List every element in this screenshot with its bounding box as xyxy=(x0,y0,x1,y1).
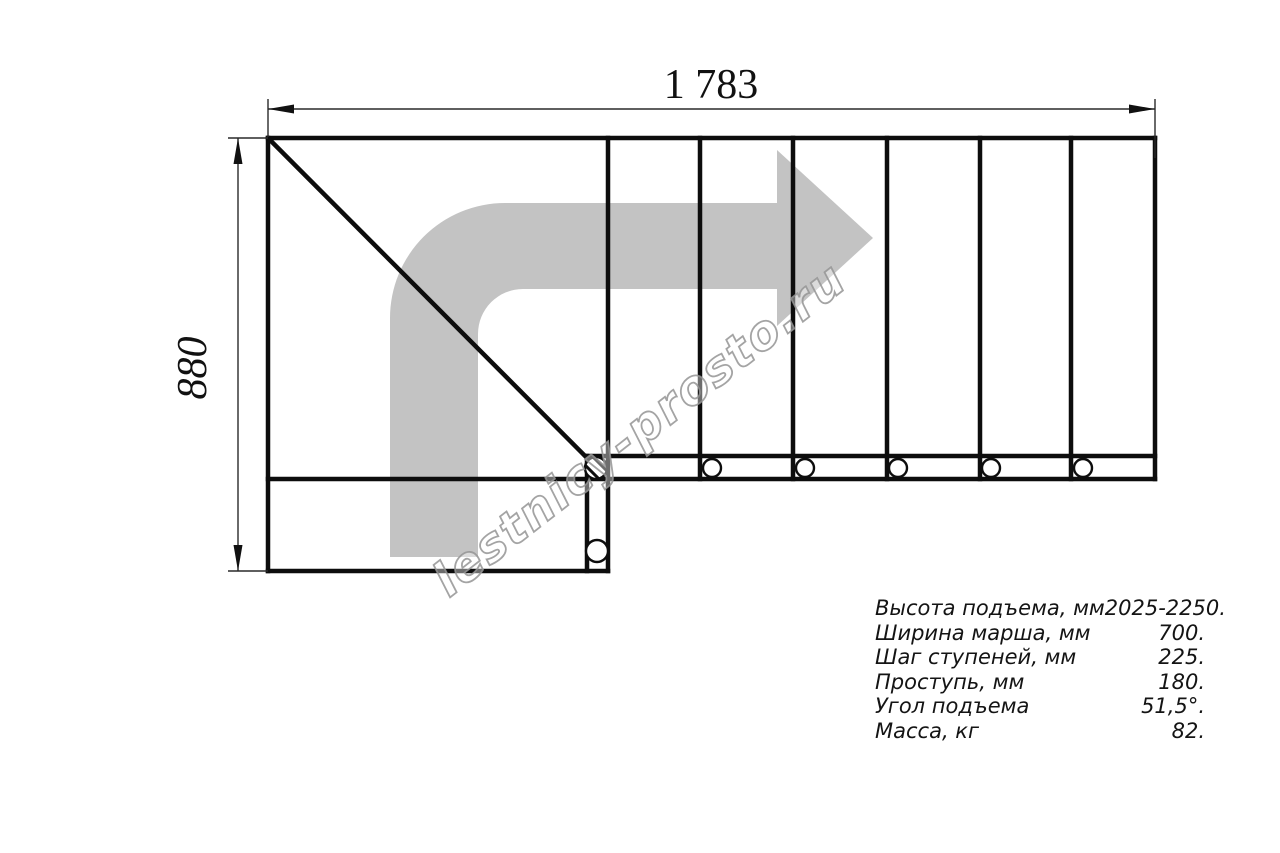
dim-arrowhead-left-icon xyxy=(268,105,294,114)
spec-row-climb-angle: Угол подъема 51,5°. xyxy=(875,694,1205,719)
dim-arrowhead-down-icon xyxy=(234,545,243,571)
dim-height-label: 880 xyxy=(170,337,216,400)
spec-value: 51,5°. xyxy=(1141,694,1205,719)
spec-row-mass: Масса, кг 82. xyxy=(875,719,1205,744)
stringer-bolt-icon-1 xyxy=(703,459,721,477)
spec-row-tread: Проступь, мм 180. xyxy=(875,670,1205,695)
stringer-bolt-icon-4 xyxy=(982,459,1000,477)
spec-value: 700. xyxy=(1158,621,1205,646)
spec-label: Масса, кг xyxy=(875,719,979,744)
spec-value: 82. xyxy=(1172,719,1205,744)
spec-row-flight-width: Ширина марша, мм 700. xyxy=(875,621,1205,646)
dimensions xyxy=(228,99,1155,571)
dim-arrowhead-up-icon xyxy=(234,138,243,164)
stringer-bolt-icon-2 xyxy=(796,459,814,477)
blueprint-canvas: 1 783 880 lestnicy-prosto.ru Высота подъ… xyxy=(0,0,1280,853)
stringer-bolt-icon-5 xyxy=(1074,459,1092,477)
spec-label: Проступь, мм xyxy=(875,670,1024,695)
spec-label: Высота подъема, мм xyxy=(875,596,1105,621)
dim-arrowhead-right-icon xyxy=(1129,105,1155,114)
stringer-bolt-icon-3 xyxy=(889,459,907,477)
spec-value: 180. xyxy=(1158,670,1205,695)
spec-row-rise-height: Высота подъема, мм 2025-2250. xyxy=(875,596,1205,621)
spec-label: Ширина марша, мм xyxy=(875,621,1091,646)
direction-arrow-icon xyxy=(390,150,873,557)
dim-width-label: 1 783 xyxy=(664,62,759,108)
landing-bolt-icon xyxy=(586,540,608,562)
dimension-arrowheads xyxy=(234,105,1156,572)
spec-row-step-pitch: Шаг ступеней, мм 225. xyxy=(875,645,1205,670)
spec-label: Шаг ступеней, мм xyxy=(875,645,1076,670)
spec-value: 2025-2250. xyxy=(1105,596,1226,621)
spec-table: Высота подъема, мм 2025-2250. Ширина мар… xyxy=(875,596,1205,743)
bolt-marks xyxy=(580,453,1092,562)
spec-label: Угол подъема xyxy=(875,694,1029,719)
spec-value: 225. xyxy=(1158,645,1205,670)
